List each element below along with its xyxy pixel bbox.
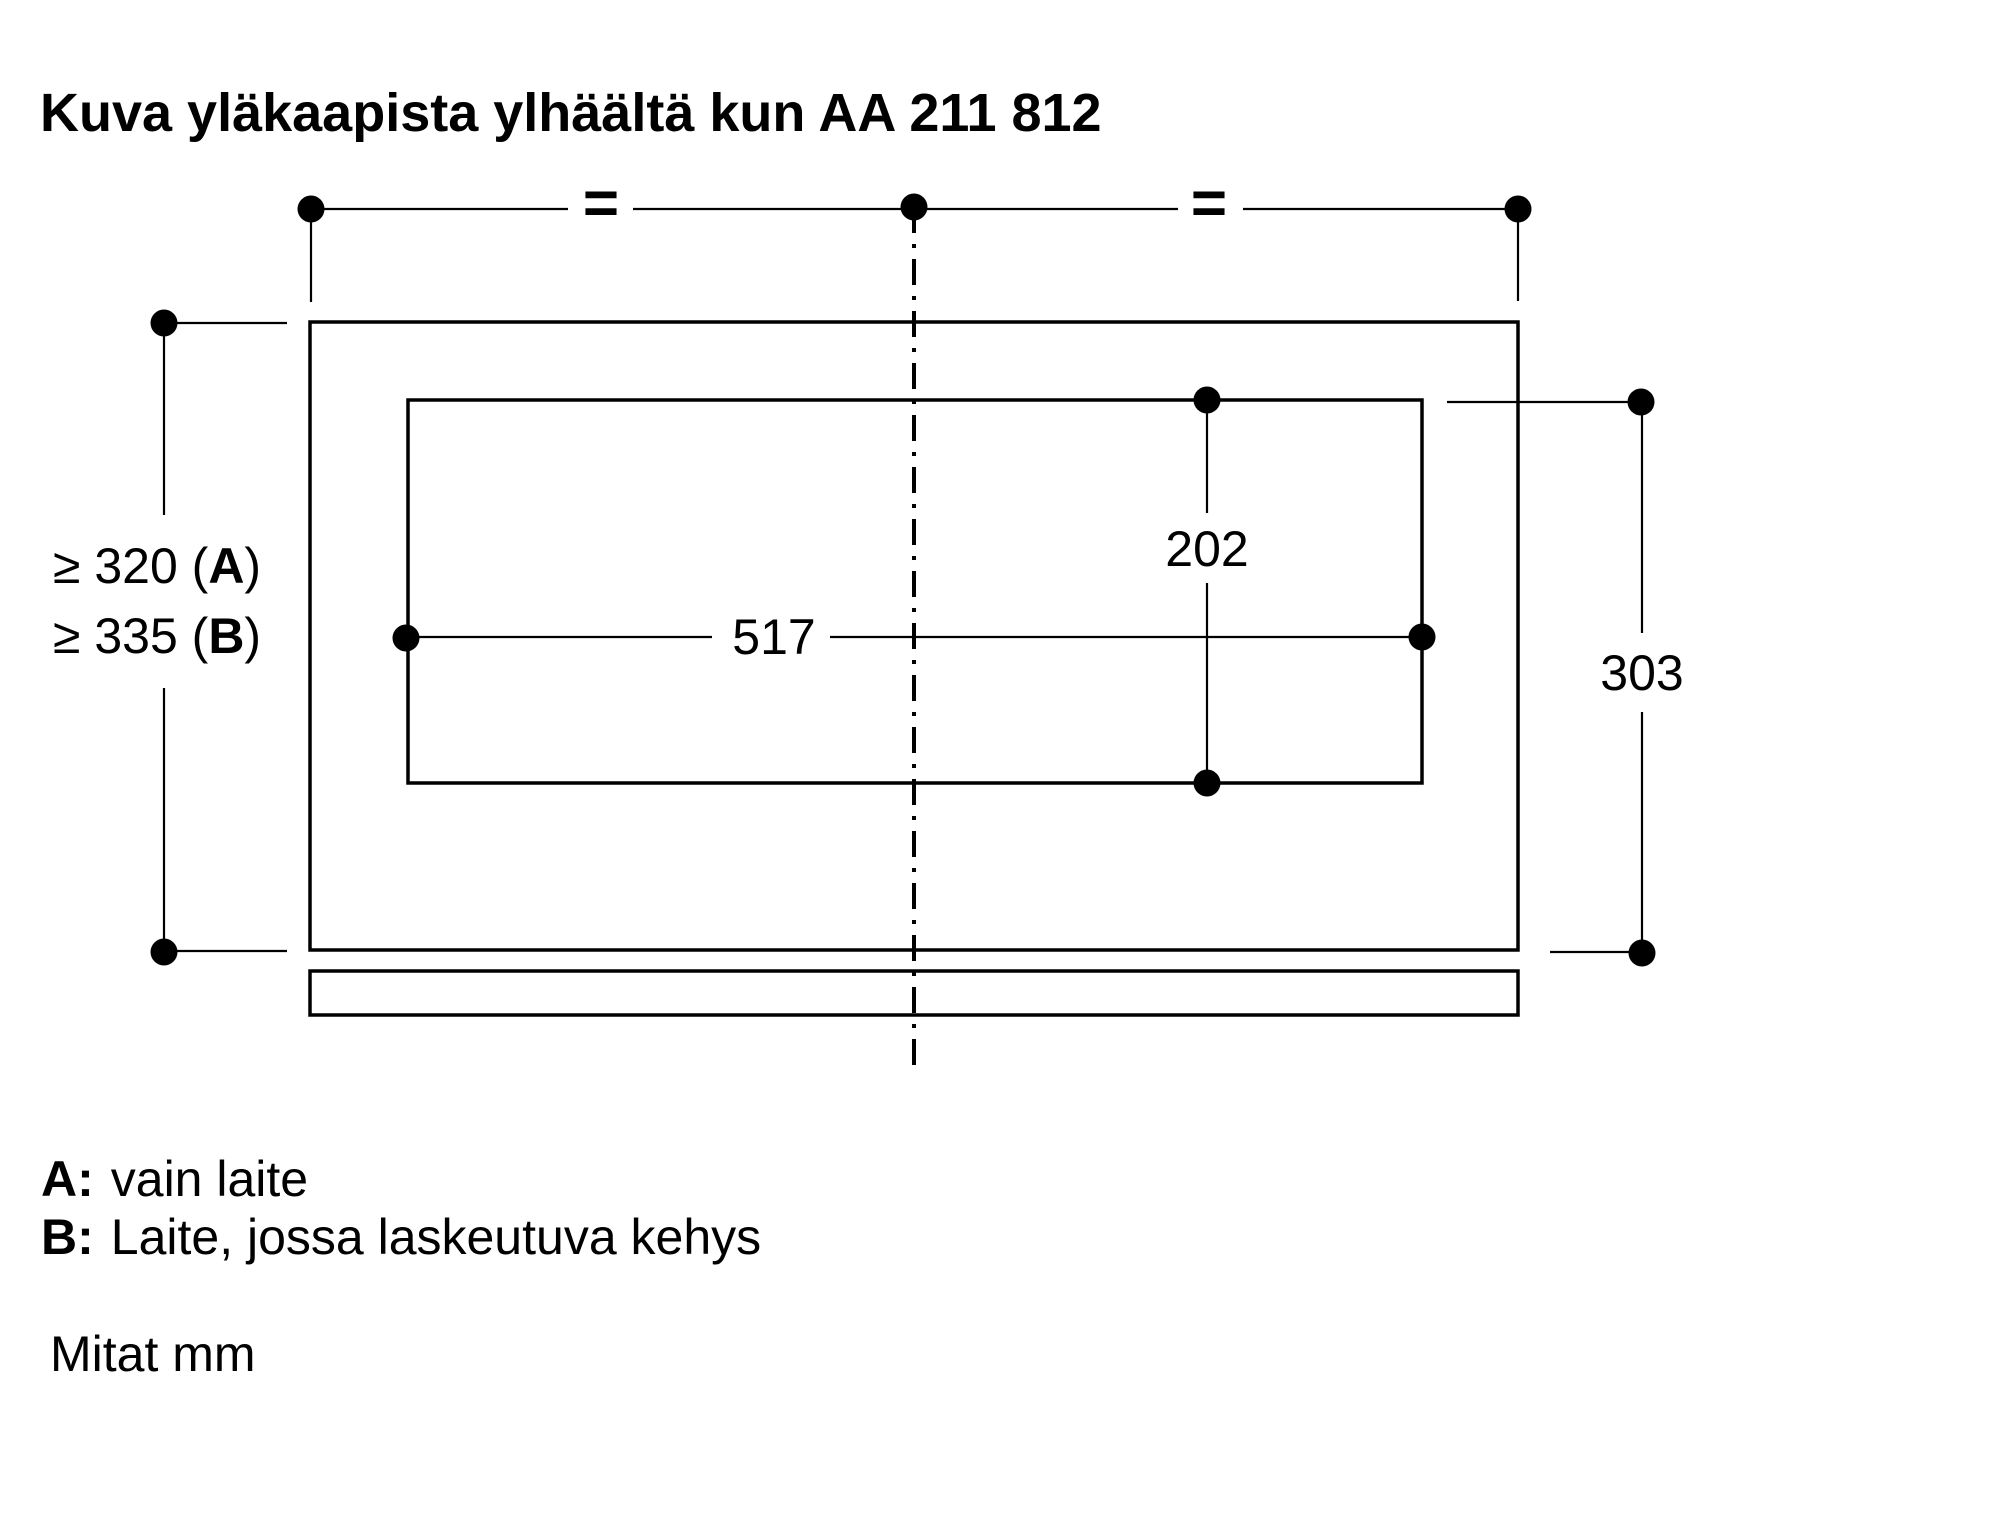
legend-a-text: vain laite [111, 1150, 308, 1208]
left-upper-dot [151, 310, 178, 337]
cutout-top-dot [1194, 387, 1221, 414]
equal-spacing-symbol-right: = [1191, 169, 1227, 238]
cutout-depth-dimension-value: 202 [1165, 520, 1248, 578]
clearance-a-prefix: ≥ 320 ( [53, 538, 208, 594]
top-center-dot [901, 194, 928, 221]
legend-row-b: B: Laite, jossa laskeutuva kehys [41, 1208, 761, 1266]
dimension-dots [151, 194, 1656, 967]
clearance-b-suffix: ) [244, 608, 261, 664]
clearance-b-key: B [208, 608, 244, 664]
legend-b-key: B: [41, 1208, 94, 1266]
units-note: Mitat mm [50, 1325, 256, 1383]
right-depth-dimension-value: 303 [1600, 644, 1683, 702]
width-left-dot [393, 625, 420, 652]
legend-row-a: A: vain laite [41, 1150, 308, 1208]
legend-a-key: A: [41, 1150, 94, 1208]
legend-b-text: Laite, jossa laskeutuva kehys [111, 1208, 761, 1266]
equal-spacing-symbol-left: = [583, 169, 619, 238]
width-right-dot [1409, 624, 1436, 651]
width-dimension-value: 517 [732, 608, 815, 666]
left-lower-dot [151, 939, 178, 966]
clearance-b-prefix: ≥ 335 ( [53, 608, 208, 664]
right-lower-dot [1629, 940, 1656, 967]
clearance-label-b: ≥ 335 (B) [53, 607, 261, 665]
page-title: Kuva yläkaapista ylhäältä kun AA 211 812 [40, 82, 1102, 145]
installation-diagram-page: = = Kuva yläkaapista ylhäältä kun AA 211… [0, 0, 2000, 1536]
top-left-dot [298, 196, 325, 223]
right-upper-dot [1628, 389, 1655, 416]
top-right-dot [1505, 196, 1532, 223]
clearance-a-key: A [208, 538, 244, 594]
cabinet-top-view-diagram: = = [0, 0, 2000, 1536]
cutout-bottom-dot [1194, 770, 1221, 797]
clearance-a-suffix: ) [244, 538, 261, 594]
clearance-label-a: ≥ 320 (A) [53, 537, 261, 595]
